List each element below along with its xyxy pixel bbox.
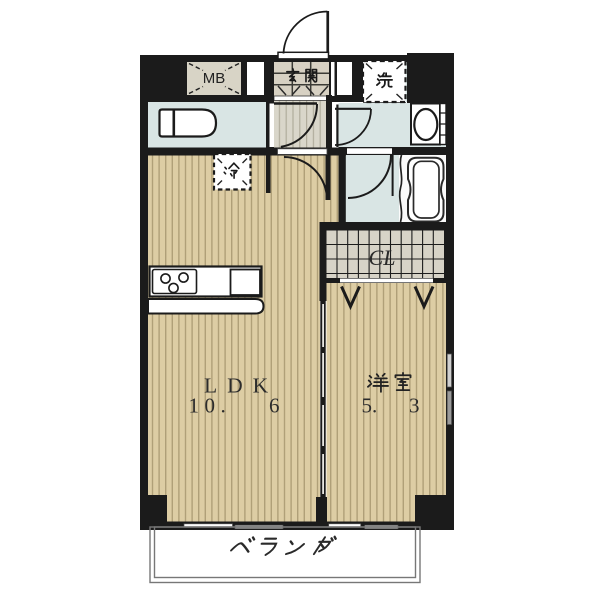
svg-text:3: 3 xyxy=(409,394,420,418)
svg-text:6: 6 xyxy=(269,394,280,418)
svg-text:CL: CL xyxy=(369,245,396,270)
svg-text:10.: 10. xyxy=(189,394,232,418)
svg-text:MB: MB xyxy=(203,70,226,87)
svg-text:5.: 5. xyxy=(362,394,378,418)
